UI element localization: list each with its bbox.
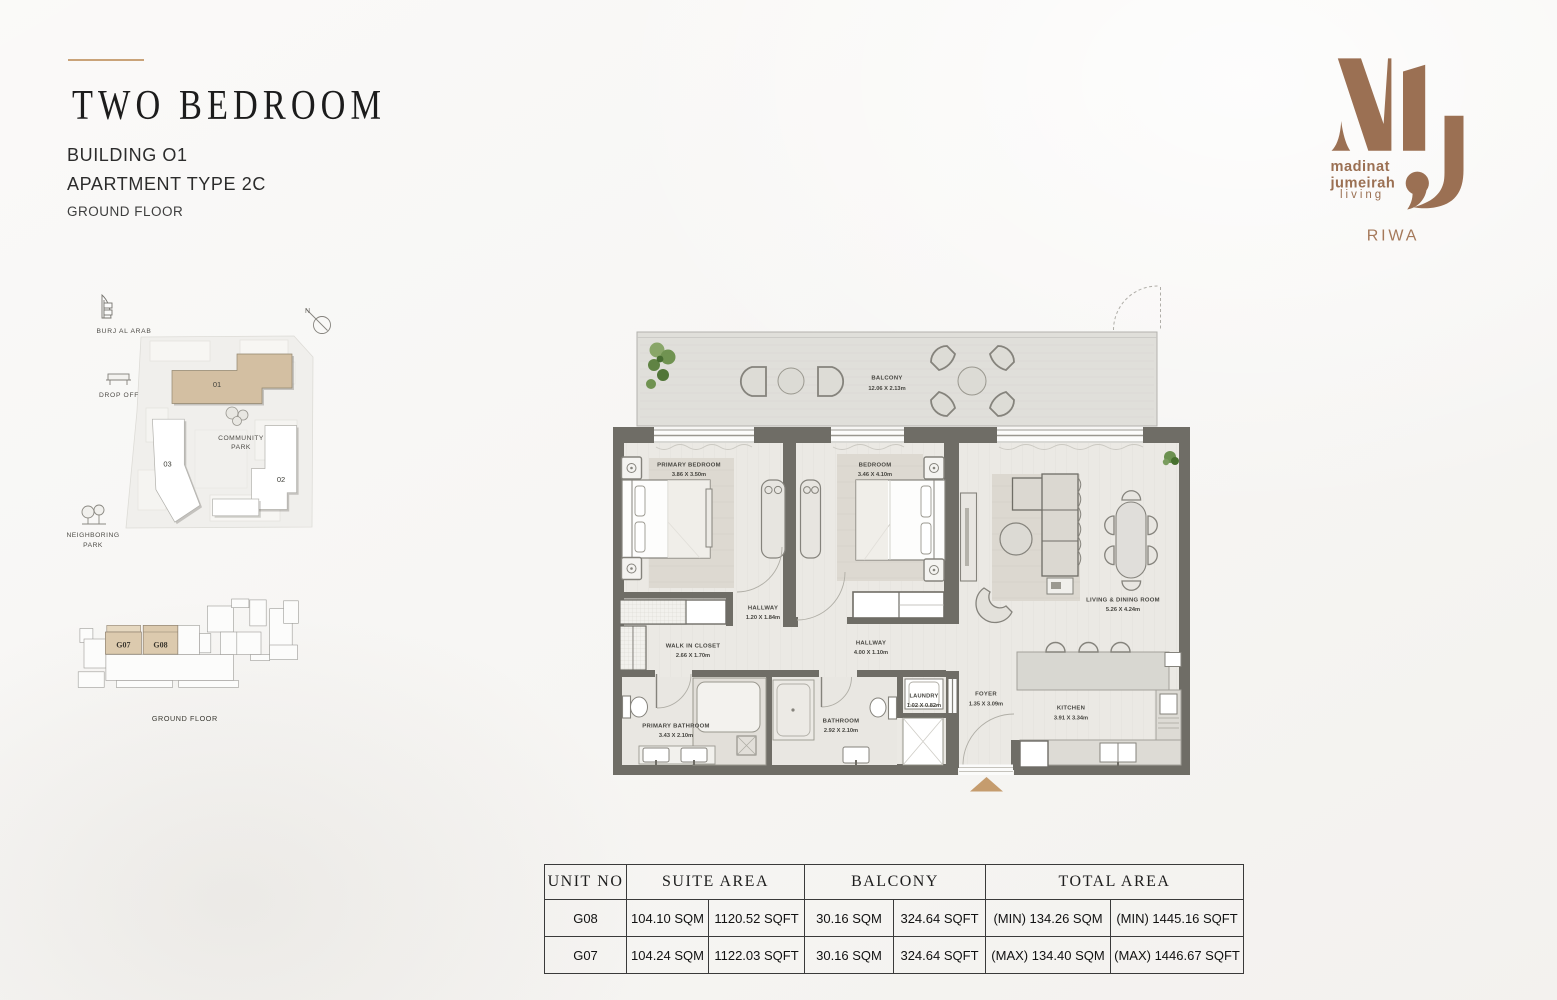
svg-text:2.92 X 2.10m: 2.92 X 2.10m <box>824 728 858 734</box>
svg-text:HALLWAY: HALLWAY <box>856 641 886 647</box>
svg-text:LIVING & DINING ROOM: LIVING & DINING ROOM <box>1086 598 1160 604</box>
svg-text:1.02 X 0.82m: 1.02 X 0.82m <box>907 703 941 709</box>
svg-text:BURJ AL ARAB: BURJ AL ARAB <box>97 328 152 335</box>
svg-text:PRIMARY BEDROOM: PRIMARY BEDROOM <box>657 463 721 469</box>
svg-text:LAUNDRY: LAUNDRY <box>910 694 939 700</box>
svg-text:1.20 X 1.84m: 1.20 X 1.84m <box>746 615 780 621</box>
svg-text:RIWA: RIWA <box>1367 228 1419 245</box>
svg-text:3.46 X 4.10m: 3.46 X 4.10m <box>858 472 892 478</box>
svg-text:BATHROOM: BATHROOM <box>823 719 860 725</box>
svg-text:DROP OFF: DROP OFF <box>99 392 139 399</box>
svg-text:PARK: PARK <box>231 444 251 451</box>
svg-text:02: 02 <box>277 475 285 484</box>
svg-text:FOYER: FOYER <box>975 692 997 698</box>
svg-text:3.91 X 3.34m: 3.91 X 3.34m <box>1054 716 1088 722</box>
svg-text:KITCHEN: KITCHEN <box>1057 706 1085 712</box>
svg-text:5.26 X 4.24m: 5.26 X 4.24m <box>1106 607 1140 613</box>
svg-text:PRIMARY BATHROOM: PRIMARY BATHROOM <box>642 724 710 730</box>
svg-text:3.43 X 2.10m: 3.43 X 2.10m <box>659 733 693 739</box>
svg-text:GROUND FLOOR: GROUND FLOOR <box>152 714 218 723</box>
svg-text:12.06 X 2.13m: 12.06 X 2.13m <box>868 386 905 392</box>
svg-text:4.00 X 1.10m: 4.00 X 1.10m <box>854 650 888 656</box>
svg-text:madinat: madinat <box>1331 159 1390 175</box>
svg-text:G07: G07 <box>116 641 130 650</box>
svg-text:PARK: PARK <box>83 542 103 549</box>
svg-text:3.86 X 3.50m: 3.86 X 3.50m <box>672 472 706 478</box>
svg-text:living: living <box>1340 189 1384 201</box>
svg-text:BALCONY: BALCONY <box>871 376 902 382</box>
svg-text:BEDROOM: BEDROOM <box>859 463 892 469</box>
svg-text:03: 03 <box>163 460 171 469</box>
svg-text:N: N <box>305 308 310 315</box>
svg-text:1.35 X 3.09m: 1.35 X 3.09m <box>969 702 1003 708</box>
svg-text:WALK IN CLOSET: WALK IN CLOSET <box>666 644 721 650</box>
svg-text:01: 01 <box>213 380 221 389</box>
svg-text:NEIGHBORING: NEIGHBORING <box>66 532 119 539</box>
svg-text:2.66 X 1.70m: 2.66 X 1.70m <box>676 653 710 659</box>
svg-text:G08: G08 <box>153 641 167 650</box>
svg-text:COMMUNITY: COMMUNITY <box>218 435 264 442</box>
svg-text:HALLWAY: HALLWAY <box>748 606 778 612</box>
